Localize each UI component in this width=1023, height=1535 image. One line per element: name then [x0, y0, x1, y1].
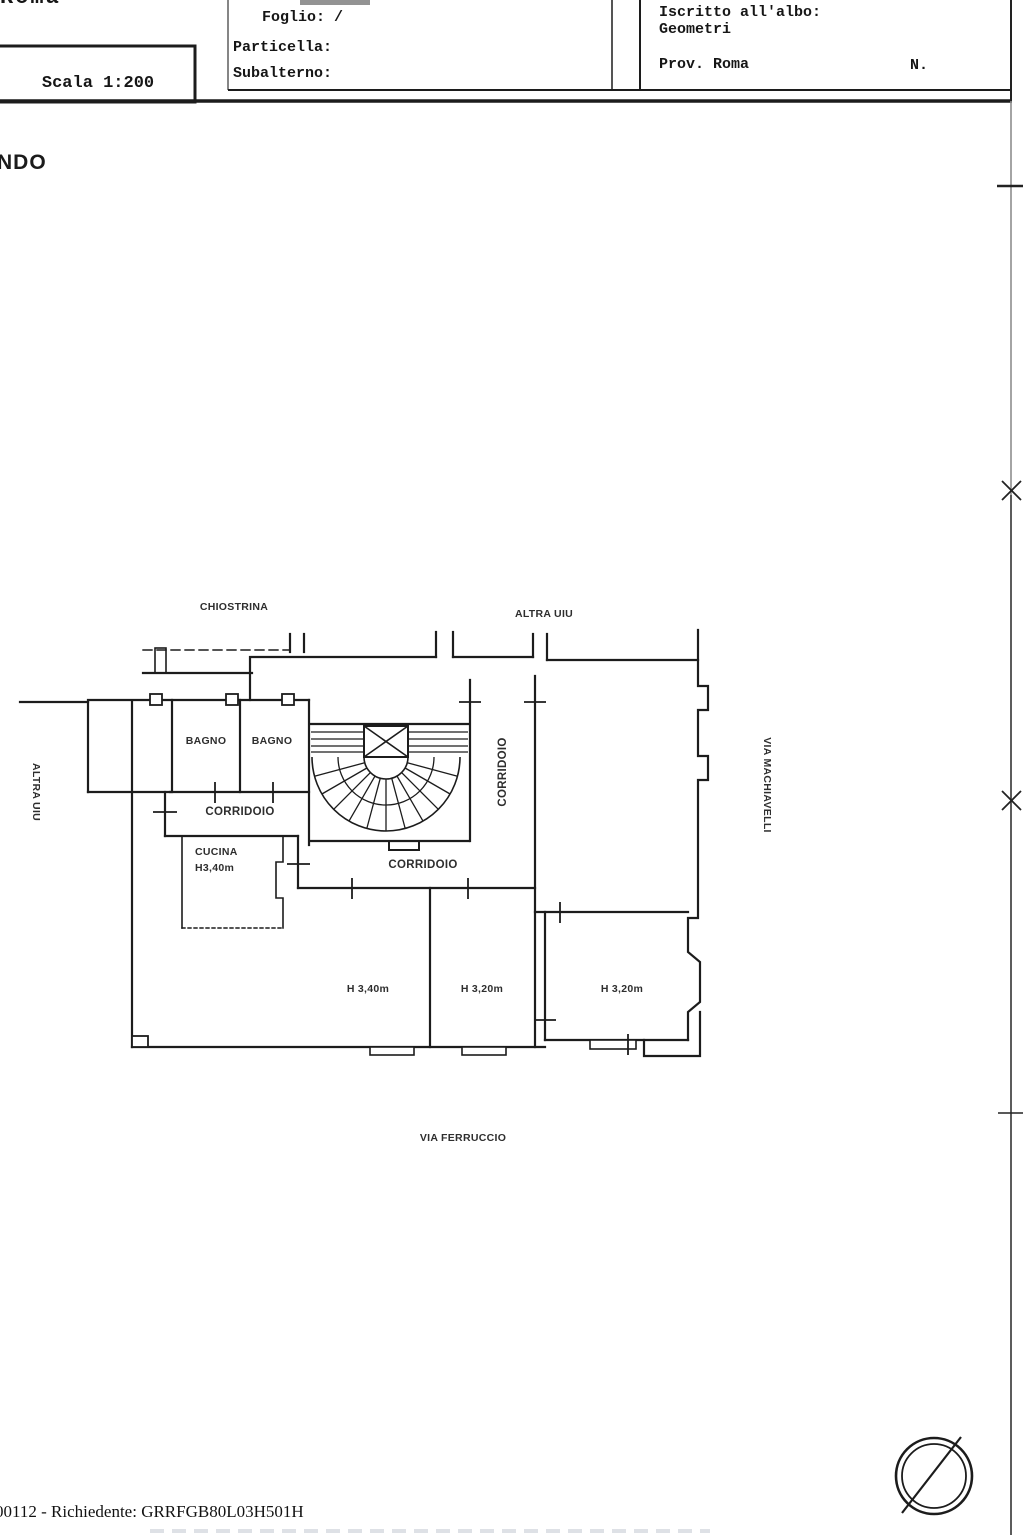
request-reference-line: 00112 - Richiedente: GRRFGB80L03H501H [0, 1502, 304, 1522]
field-n: N. [910, 57, 928, 74]
plan-linework [0, 0, 1023, 1535]
label-altra-uiu-top: ALTRA UIU [503, 608, 585, 620]
header-field-cutoff-fragment [300, 0, 370, 5]
field-iscritto-albo: Iscritto all'albo: [659, 4, 821, 21]
field-foglio: Foglio: / [262, 9, 343, 26]
stair [309, 724, 470, 850]
roma-fragment-text: Roma [0, 0, 92, 10]
label-cucina-height: H3,40m [195, 862, 234, 874]
label-bagno-1: BAGNO [182, 735, 230, 747]
cadastral-plan-page: Roma Scala 1:200 Foglio: / Particella: S… [0, 0, 1023, 1535]
field-geometri: Geometri [659, 21, 731, 38]
roma-cutoff-fragment: Roma [0, 0, 92, 11]
label-room2-height: H 3,20m [444, 983, 520, 995]
field-subalterno: Subalterno: [233, 65, 332, 82]
label-room1-height: H 3,40m [330, 983, 406, 995]
label-via-ferruccio: VIA FERRUCCIO [413, 1132, 513, 1144]
footer-cutoff-line [150, 1529, 710, 1533]
label-cucina: CUCINA [195, 846, 238, 858]
page-border [997, 0, 1023, 1535]
door-marks [153, 702, 628, 1055]
label-corridoio-small: CORRIDOIO [197, 806, 283, 818]
label-room3-height: H 3,20m [584, 983, 660, 995]
label-via-machiavelli: VIA MACHIAVELLI [761, 720, 773, 850]
label-corridoio-main: CORRIDOIO [379, 859, 467, 871]
floor-title-fragment: NDO [0, 151, 47, 175]
label-corridoio-vertical: CORRIDOIO [497, 722, 509, 822]
north-symbol [896, 1437, 972, 1514]
field-prov-roma: Prov. Roma [659, 56, 749, 73]
label-altra-uiu-left: ALTRA UIU [30, 742, 42, 842]
field-particella: Particella: [233, 39, 332, 56]
label-chiostrina: CHIOSTRINA [193, 601, 275, 613]
scale-label: Scala 1:200 [8, 74, 188, 93]
label-bagno-2: BAGNO [248, 735, 296, 747]
